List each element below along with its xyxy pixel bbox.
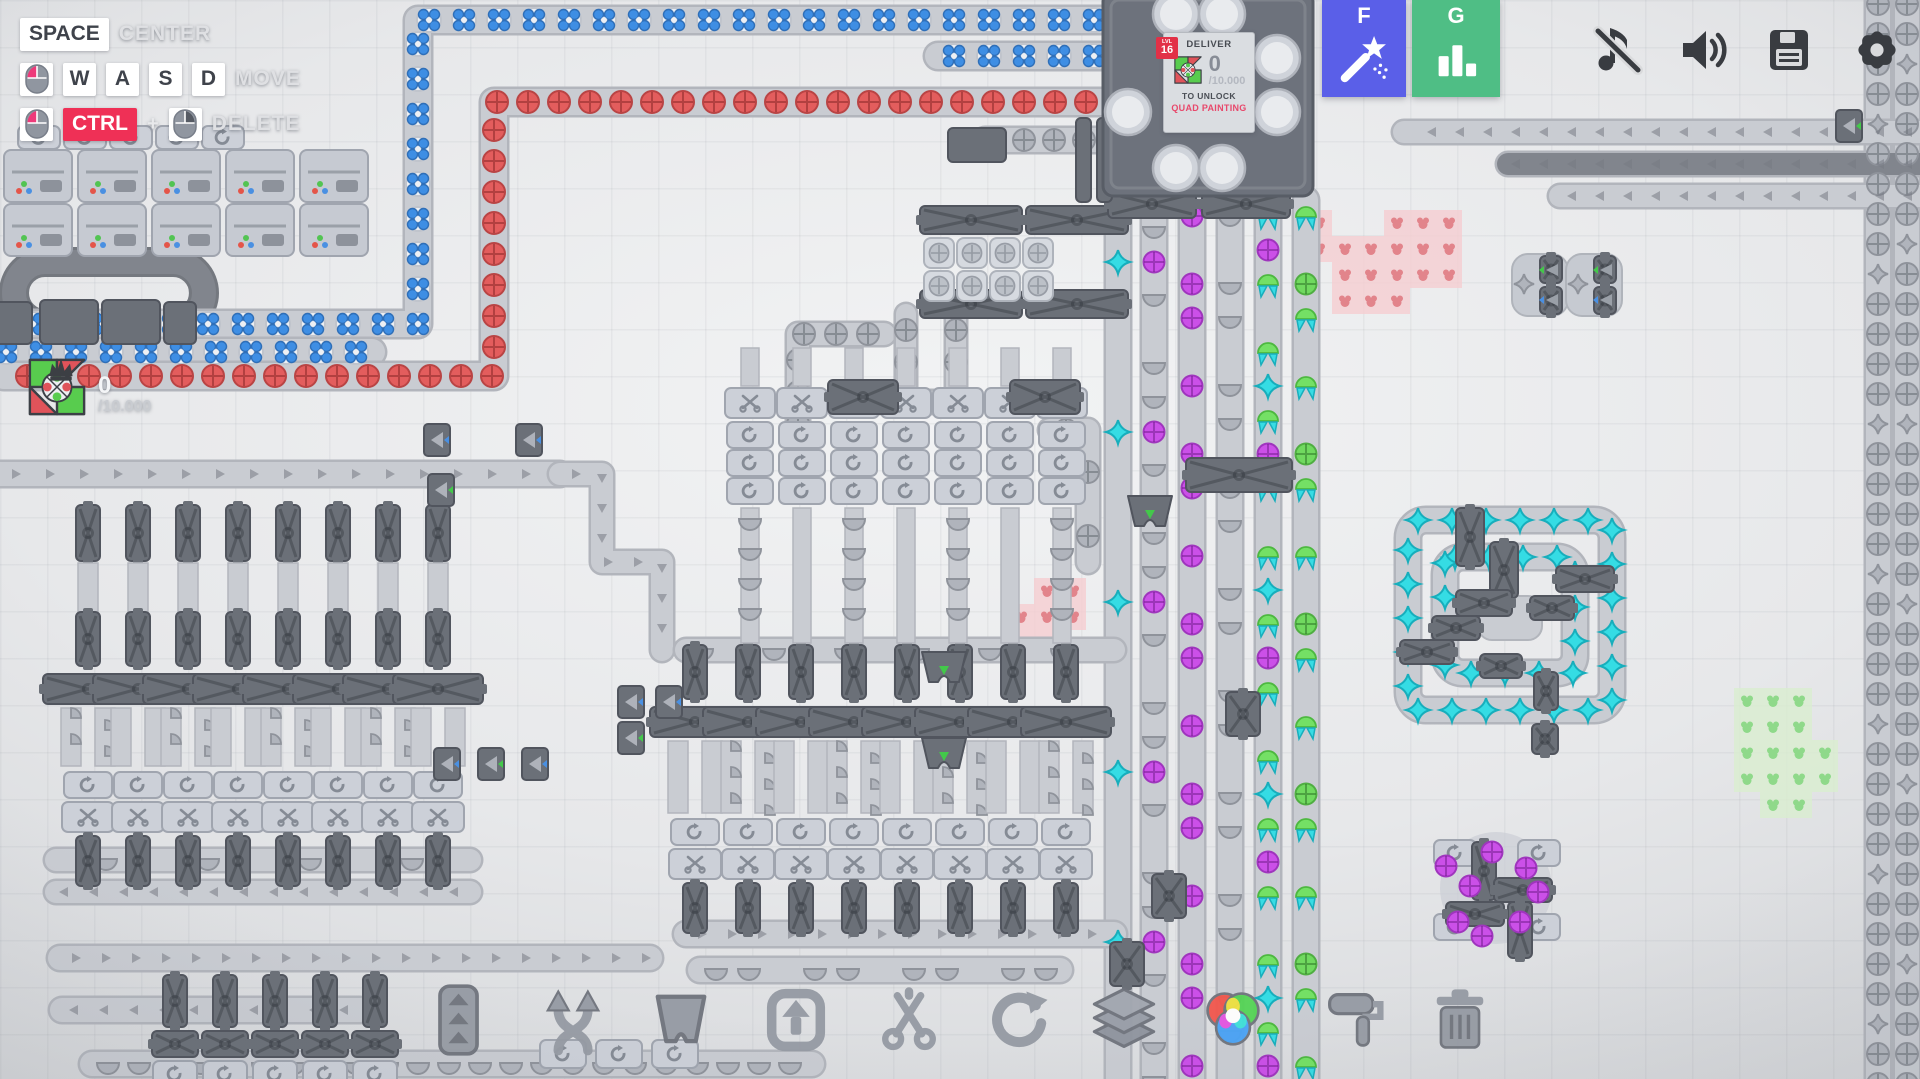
wand-hotkey: F — [1357, 4, 1370, 28]
wand-button[interactable]: F — [1322, 0, 1406, 97]
reward-label: QUAD PAINTING — [1164, 103, 1254, 113]
crown-icon — [44, 354, 78, 384]
music-muted-icon — [1589, 22, 1645, 78]
keybind-hints: SPACE CENTER W A S D MOVE CTRL + DELETE — [20, 16, 301, 151]
belt-icon — [421, 983, 495, 1057]
stats-hotkey: G — [1447, 4, 1464, 28]
tool-trash[interactable] — [1423, 983, 1497, 1057]
paint-roller-icon — [1318, 983, 1392, 1057]
color-wheel-icon — [1196, 983, 1270, 1057]
key-w: W — [63, 63, 96, 96]
key-d: D — [192, 63, 225, 96]
unlock-label: TO UNLOCK — [1164, 91, 1254, 101]
stats-button[interactable]: G — [1412, 0, 1500, 97]
tool-belt-swap[interactable] — [535, 983, 609, 1057]
factory-scene[interactable] — [0, 0, 1920, 1079]
rotate-icon — [982, 983, 1056, 1057]
key-a: A — [106, 63, 139, 96]
hint-move: W A S D MOVE — [20, 61, 301, 97]
tool-layers[interactable] — [1087, 983, 1161, 1057]
game-viewport: SPACE CENTER W A S D MOVE CTRL + DELETE … — [0, 0, 1920, 1079]
key-ctrl: CTRL — [63, 108, 137, 141]
trash-icon — [1423, 983, 1497, 1057]
save-icon — [1761, 22, 1817, 78]
mouse-left-icon — [20, 63, 53, 96]
tool-lift[interactable] — [759, 983, 833, 1057]
deliver-count: 0 — [1209, 53, 1246, 75]
level-badge: LVL 16 — [1156, 37, 1178, 59]
volume-icon — [1675, 22, 1731, 78]
tool-cut[interactable] — [872, 983, 946, 1057]
swap-arrows-icon — [535, 983, 609, 1057]
lift-icon — [759, 983, 833, 1057]
tool-color-mixer[interactable] — [1196, 983, 1270, 1057]
level-value: 16 — [1161, 45, 1173, 56]
settings-button[interactable] — [1849, 22, 1905, 78]
plus-sign: + — [147, 113, 159, 136]
save-button[interactable] — [1761, 22, 1817, 78]
key-s: S — [149, 63, 182, 96]
mouse-right-icon — [169, 108, 202, 141]
bar-chart-icon — [1424, 28, 1488, 88]
goal-count: 0 — [98, 374, 151, 398]
tool-paint[interactable] — [1318, 983, 1392, 1057]
scissors-icon — [872, 983, 946, 1057]
tool-tunnel[interactable] — [644, 983, 718, 1057]
layers-icon — [1087, 983, 1161, 1057]
volume-button[interactable] — [1675, 22, 1731, 78]
tool-rotate[interactable] — [982, 983, 1056, 1057]
move-label: MOVE — [235, 67, 301, 91]
goal-total: /10.000 — [98, 398, 151, 416]
wand-icon — [1332, 28, 1396, 88]
delete-label: DELETE — [212, 112, 301, 136]
hub-delivery-card: LVL 16 DELIVER 0 /10.000 TO UNLOCK QUAD … — [1163, 32, 1255, 133]
hint-delete: CTRL + DELETE — [20, 106, 301, 142]
goal-shape-icon — [1173, 55, 1203, 85]
mouse-left-icon — [20, 108, 53, 141]
goal-progress: 0 /10.000 — [26, 356, 151, 418]
center-label: CENTER — [119, 22, 211, 46]
music-muted-button[interactable] — [1589, 22, 1645, 78]
gear-icon — [1849, 22, 1905, 78]
tunnel-icon — [644, 983, 718, 1057]
tool-belt[interactable] — [421, 983, 495, 1057]
key-space: SPACE — [20, 18, 109, 51]
hint-center: SPACE CENTER — [20, 16, 301, 52]
deliver-goal: /10.000 — [1209, 75, 1246, 87]
